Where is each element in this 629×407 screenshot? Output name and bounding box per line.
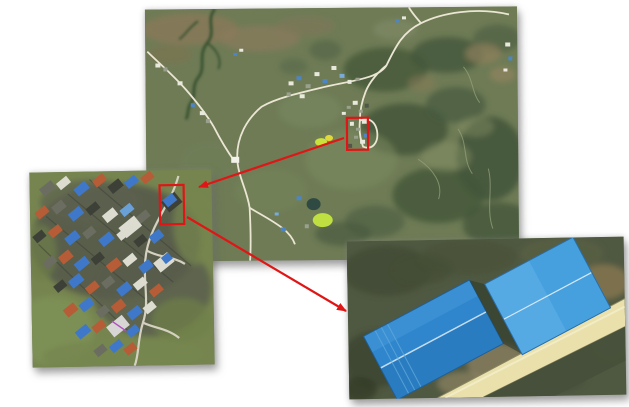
panel-village-inset — [29, 169, 214, 367]
figure-canvas — [0, 0, 629, 407]
village-inset-art — [29, 169, 214, 367]
warehouse-inset-art — [347, 237, 627, 400]
panel-warehouse-inset — [347, 237, 627, 400]
